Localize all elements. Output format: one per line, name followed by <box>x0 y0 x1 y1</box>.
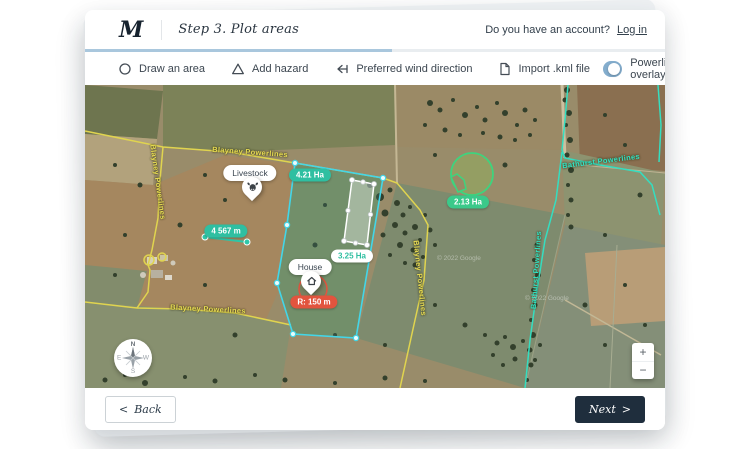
page-title: Step 3. Plot areas <box>178 22 299 37</box>
hazard-triangle-icon <box>231 62 245 76</box>
zoom-out-button[interactable]: − <box>632 362 654 380</box>
account-prompt-text: Do you have an account? <box>485 24 610 36</box>
next-button-label: Next <box>589 403 616 416</box>
account-prompt: Do you have an account? Log in <box>485 24 647 36</box>
powerline-overlays-toggle[interactable] <box>603 61 622 77</box>
draw-area-button[interactable]: Draw an area <box>105 62 218 76</box>
house-icon <box>306 276 317 287</box>
powerline-overlays-label: Powerline overlays <box>630 57 665 81</box>
back-button-label: Back <box>134 403 161 416</box>
measurement-badge: 4 567 m <box>204 225 247 238</box>
header-divider <box>161 20 162 40</box>
zoom-in-button[interactable]: + <box>632 343 654 362</box>
toolbar: Draw an area Add hazard Preferred wind d… <box>85 52 665 85</box>
house-pin[interactable] <box>301 271 323 293</box>
draw-area-label: Draw an area <box>139 63 205 75</box>
next-button[interactable]: Next > <box>575 396 645 423</box>
compass: N S E W <box>114 339 152 377</box>
next-chevron-icon: > <box>622 403 631 416</box>
map-base-layer <box>85 85 665 388</box>
map-watermark: © 2022 Google <box>525 295 569 302</box>
toggle-knob <box>608 63 620 75</box>
rect-area-badge: 3.25 Ha <box>331 250 373 263</box>
back-chevron-icon: < <box>119 403 128 416</box>
compass-south: S <box>131 368 135 375</box>
cow-icon <box>247 182 258 193</box>
app-card: M Step 3. Plot areas Do you have an acco… <box>85 10 665 430</box>
circle-area-shape[interactable] <box>451 153 493 195</box>
import-kml-label: Import .kml file <box>518 63 590 75</box>
compass-west: W <box>143 355 149 362</box>
file-icon <box>498 62 511 76</box>
house-radius-badge: R: 150 m <box>290 296 337 309</box>
draw-area-circle-icon <box>118 62 132 76</box>
circle-area-badge: 2.13 Ha <box>447 196 489 209</box>
footer: < Back Next > <box>85 388 665 430</box>
cyan-area-badge: 4.21 Ha <box>289 169 331 182</box>
livestock-pin[interactable] <box>242 177 264 199</box>
wind-direction-label: Preferred wind direction <box>356 63 472 75</box>
import-kml-button[interactable]: Import .kml file <box>485 62 603 76</box>
satellite-map[interactable]: Blayney Powerlines Blayney Powerlines Bl… <box>85 85 665 388</box>
brand-logo: M <box>119 17 143 43</box>
compass-east: E <box>117 355 121 362</box>
powerline-overlays-control: Powerline overlays <box>603 57 665 81</box>
map-zoom-control: + − <box>632 343 654 379</box>
map-watermark: © 2022 Google <box>437 255 481 262</box>
login-link[interactable]: Log in <box>617 24 647 36</box>
add-hazard-label: Add hazard <box>252 63 308 75</box>
header: M Step 3. Plot areas Do you have an acco… <box>85 10 665 49</box>
wind-direction-button[interactable]: Preferred wind direction <box>321 62 485 76</box>
back-button[interactable]: < Back <box>105 396 176 423</box>
wind-direction-icon <box>334 62 349 76</box>
compass-north: N <box>131 341 136 348</box>
add-hazard-button[interactable]: Add hazard <box>218 62 321 76</box>
